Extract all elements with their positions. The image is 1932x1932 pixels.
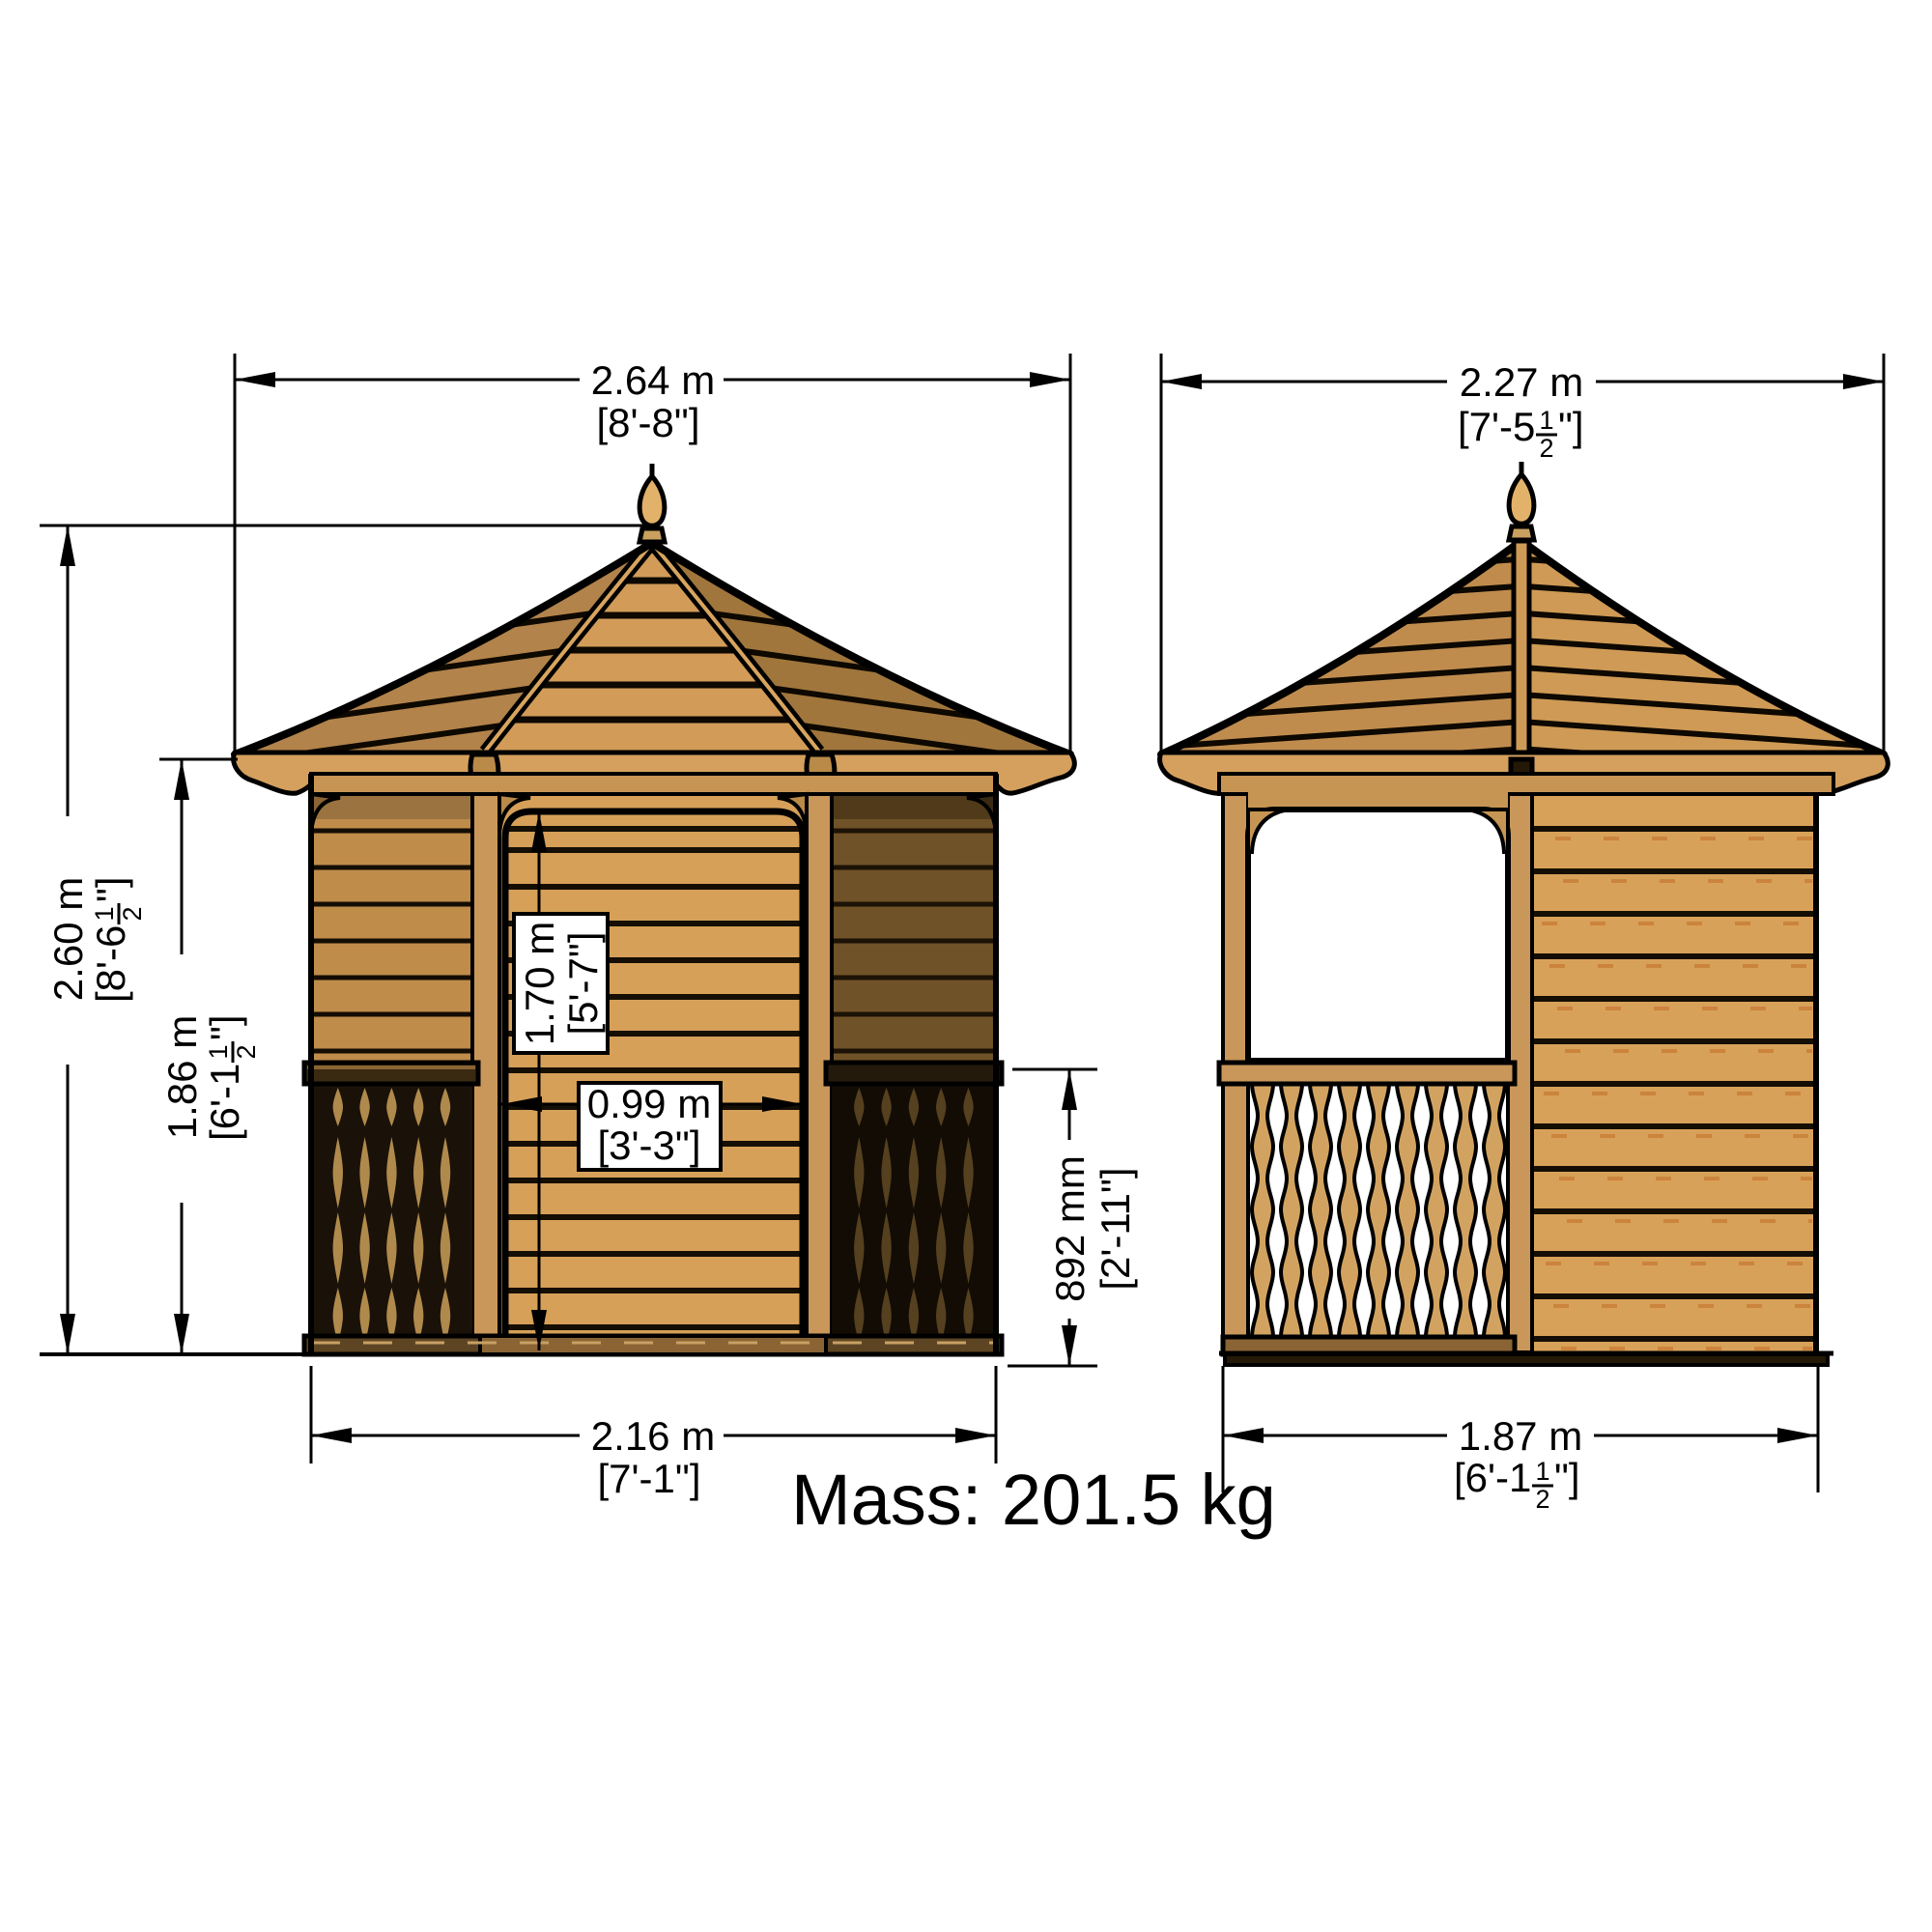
svg-text:1: 1 (90, 906, 119, 921)
svg-text:"]: "] (88, 876, 133, 902)
svg-text:892 mm: 892 mm (1047, 1155, 1093, 1302)
svg-text:Mass: 201.5 kg: Mass: 201.5 kg (791, 1460, 1276, 1540)
svg-text:"]: "] (1554, 1455, 1580, 1500)
svg-text:0.99 m: 0.99 m (587, 1081, 711, 1126)
svg-text:2.60 m: 2.60 m (45, 877, 91, 1001)
svg-text:[6'-1: [6'-1 (202, 1064, 247, 1141)
svg-text:2.64 m: 2.64 m (591, 357, 715, 403)
svg-text:[8'-6: [8'-6 (88, 925, 133, 1003)
svg-text:2: 2 (1535, 1485, 1549, 1514)
svg-text:2: 2 (232, 1044, 261, 1059)
svg-text:"]: "] (1558, 404, 1584, 449)
svg-text:[8'-8"]: [8'-8"] (597, 400, 700, 445)
svg-text:1: 1 (1535, 1457, 1549, 1486)
svg-text:[7'-1"]: [7'-1"] (598, 1456, 701, 1501)
svg-text:2: 2 (118, 906, 147, 921)
svg-text:1.87 m: 1.87 m (1459, 1413, 1582, 1459)
svg-text:1: 1 (204, 1044, 233, 1059)
svg-text:[6'-1: [6'-1 (1454, 1455, 1531, 1500)
svg-text:2.27 m: 2.27 m (1460, 359, 1583, 405)
svg-text:1.70 m: 1.70 m (517, 922, 562, 1045)
svg-text:1.86 m: 1.86 m (159, 1015, 205, 1139)
svg-text:2.16 m: 2.16 m (591, 1413, 715, 1459)
svg-text:[2'-11"]: [2'-11"] (1093, 1167, 1138, 1290)
svg-text:[5'-7"]: [5'-7"] (560, 932, 606, 1036)
svg-text:1: 1 (1539, 406, 1553, 435)
svg-text:[7'-5: [7'-5 (1458, 404, 1535, 449)
svg-text:2: 2 (1539, 434, 1553, 463)
svg-text:"]: "] (202, 1014, 247, 1040)
svg-text:[3'-3"]: [3'-3"] (598, 1122, 701, 1168)
